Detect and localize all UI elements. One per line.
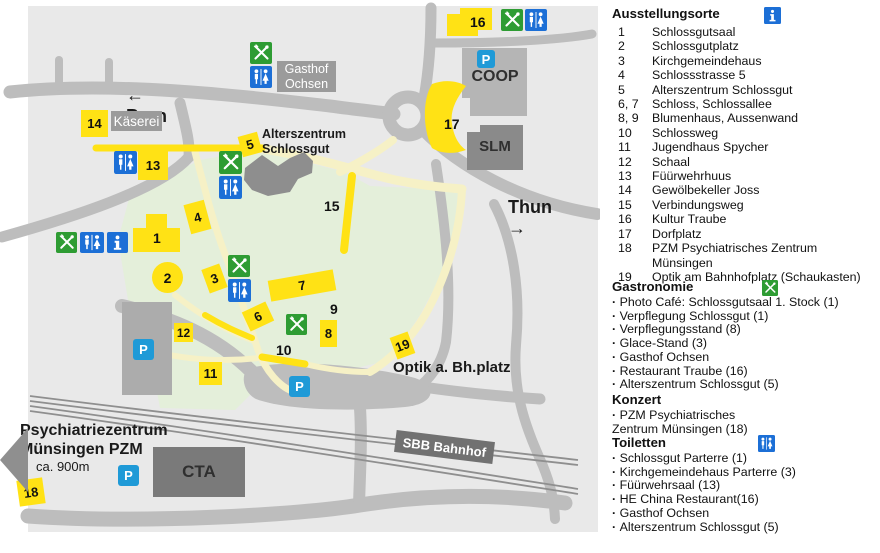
legend-item: PZM Psychiatrisches Zentrum Münsingen (1… <box>608 409 876 436</box>
legend-gastronomy-title: Gastronomie <box>608 279 876 295</box>
item-num: 12 <box>608 155 652 169</box>
legend-item: 6, 7Schloss, Schlossallee <box>608 97 876 111</box>
legend-item: Gasthof Ochsen <box>608 351 876 365</box>
legend-concert-title: Konzert <box>608 392 876 408</box>
parking-icon: P <box>289 376 310 397</box>
item-num: 17 <box>608 227 652 241</box>
item-label: Blumenhaus, Aussenwand <box>652 111 876 125</box>
item-label: PZM Psychiatrisches Zentrum Münsingen <box>652 241 876 270</box>
parking-label: P <box>124 468 133 483</box>
parking-icon: P <box>118 465 139 486</box>
item-num: 8, 9 <box>608 111 652 125</box>
marker-6-label: 6 <box>252 308 265 325</box>
item-label: Verbindungsweg <box>652 198 876 212</box>
marker-7-label: 7 <box>297 277 307 293</box>
item-label: Schloss, Schlossallee <box>652 97 876 111</box>
marker-13-label: 13 <box>146 158 160 173</box>
legend-item: 4Schlossstrasse 5 <box>608 68 876 82</box>
marker-14: 14 <box>81 110 108 137</box>
marker-1: 1 <box>153 231 161 245</box>
item-num: 18 <box>608 241 652 270</box>
item-num: 14 <box>608 183 652 197</box>
toilets-icon <box>80 232 104 253</box>
legend-item: 17Dorfplatz <box>608 227 876 241</box>
item-label: Alterszentrum Schlossgut <box>652 83 876 97</box>
marker-5-label: 5 <box>245 136 256 152</box>
restaurant-icon <box>219 151 242 174</box>
parking-icon: P <box>477 50 495 68</box>
marker-8-label: 8 <box>325 326 332 341</box>
label-alterszentrum: Alterszentrum Schlossgut <box>262 127 346 157</box>
legend-item: 15Verbindungsweg <box>608 198 876 212</box>
toilets-icon <box>758 435 775 452</box>
marker-9: 9 <box>330 302 338 316</box>
item-num: 2 <box>608 39 652 53</box>
toilets-icon <box>525 9 547 31</box>
label-gasthof-ochsen: Gasthof Ochsen <box>277 61 336 92</box>
legend-item: 13Füürwehrhuus <box>608 169 876 183</box>
legend-exhibitions: Ausstellungsorte 1Schlossgutsaal 2Schlos… <box>608 6 876 284</box>
label-pzm-distance: ca. 900m <box>36 459 89 474</box>
legend-item: 11Jugendhaus Spycher <box>608 140 876 154</box>
direction-thun: Thun → <box>508 176 552 240</box>
pzm-arrow-icon <box>0 428 28 492</box>
legend-item: HE China Restaurant(16) <box>608 493 876 507</box>
legend-item: Restaurant Traube (16) <box>608 365 876 379</box>
marker-17: 17 <box>444 117 460 131</box>
marker-11: 11 <box>199 362 222 385</box>
toilets-icon <box>114 151 137 174</box>
label-pzm: Psychiatriezentrum Münsingen PZM <box>20 421 168 459</box>
legend-item: 10Schlossweg <box>608 126 876 140</box>
item-num: 16 <box>608 212 652 226</box>
legend-item: 12Schaal <box>608 155 876 169</box>
label-kaeserei: Käserei <box>111 111 162 131</box>
item-num: 1 <box>608 25 652 39</box>
arrow-left-icon: ← <box>126 85 144 105</box>
item-label: Schaal <box>652 155 876 169</box>
item-num: 6, 7 <box>608 97 652 111</box>
restaurant-icon <box>228 255 250 277</box>
item-label: Schlossgutplatz <box>652 39 876 53</box>
marker-10: 10 <box>276 343 292 357</box>
marker-2-label: 2 <box>164 270 172 286</box>
legend-item: 2Schlossgutplatz <box>608 39 876 53</box>
legend-item: Verpflegungsstand (8) <box>608 323 876 337</box>
restaurant-icon <box>762 280 778 296</box>
marker-16: 16 <box>470 15 486 29</box>
legend-item: 3Kirchgemeindehaus <box>608 54 876 68</box>
restaurant-icon <box>501 9 523 31</box>
legend-item: Gasthof Ochsen <box>608 507 876 521</box>
map-area: 2 3 4 5 6 7 8 11 12 13 14 18 19 1 9 10 1… <box>0 0 600 553</box>
marker-4-label: 4 <box>192 209 203 225</box>
legend-item: Photo Café: Schlossgutsaal 1. Stock (1) <box>608 296 876 310</box>
parking-icon: P <box>133 339 154 360</box>
item-label: Schlossweg <box>652 126 876 140</box>
marker-11-label: 11 <box>204 366 218 381</box>
legend-item: Kirchgemeindehaus Parterre (3) <box>608 466 876 480</box>
legend-item: Alterszentrum Schlossgut (5) <box>608 521 876 535</box>
restaurant-icon <box>250 42 272 64</box>
item-num: 15 <box>608 198 652 212</box>
marker-19-label: 19 <box>393 336 412 355</box>
legend-item: Füürwehrsaal (13) <box>608 479 876 493</box>
legend-item: 18PZM Psychiatrisches Zentrum Münsingen <box>608 241 876 270</box>
legend-toilets: Toiletten Schlossgut Parterre (1) Kirchg… <box>608 435 876 534</box>
direction-thun-label: Thun <box>508 197 552 217</box>
parking-label: P <box>139 342 148 357</box>
legend-gastronomy: Gastronomie Photo Café: Schlossgutsaal 1… <box>608 279 876 392</box>
legend-exhibitions-title: Ausstellungsorte <box>608 6 876 22</box>
marker-14-label: 14 <box>87 116 101 131</box>
marker-12: 12 <box>174 323 193 342</box>
legend-item: 1Schlossgutsaal <box>608 25 876 39</box>
item-num: 4 <box>608 68 652 82</box>
legend-item: Schlossgut Parterre (1) <box>608 452 876 466</box>
item-num: 3 <box>608 54 652 68</box>
item-label: Schlossstrasse 5 <box>652 68 876 82</box>
info-icon <box>764 7 781 24</box>
marker-8: 8 <box>320 320 337 347</box>
item-label: Schlossgutsaal <box>652 25 876 39</box>
arrow-right-icon: → <box>508 218 526 238</box>
marker-15: 15 <box>324 199 340 213</box>
legend-item: 16Kultur Traube <box>608 212 876 226</box>
label-slm: SLM <box>467 138 523 155</box>
legend-toilets-title: Toiletten <box>608 435 876 451</box>
marker-13: 13 <box>138 150 168 180</box>
marker-12-label: 12 <box>177 326 190 340</box>
restaurant-icon <box>56 232 77 253</box>
item-label: Dorfplatz <box>652 227 876 241</box>
label-coop: COOP <box>462 68 528 86</box>
marker-3-label: 3 <box>209 270 221 287</box>
label-optik: Optik a. Bh.platz <box>393 359 511 377</box>
item-label: Kirchgemeindehaus <box>652 54 876 68</box>
toilets-icon <box>228 279 251 302</box>
event-map-page: 2 3 4 5 6 7 8 11 12 13 14 18 19 1 9 10 1… <box>0 0 880 553</box>
item-num: 11 <box>608 140 652 154</box>
legend-item: 8, 9Blumenhaus, Aussenwand <box>608 111 876 125</box>
item-label: Kultur Traube <box>652 212 876 226</box>
legend-concert: Konzert PZM Psychiatrisches Zentrum Müns… <box>608 392 876 436</box>
restaurant-icon <box>286 314 307 335</box>
item-num: 13 <box>608 169 652 183</box>
label-cta: CTA <box>153 462 245 482</box>
item-num: 10 <box>608 126 652 140</box>
info-icon <box>107 232 128 253</box>
item-label: Gewölbekeller Joss <box>652 183 876 197</box>
marker-2: 2 <box>152 262 183 293</box>
legend-item: 5Alterszentrum Schlossgut <box>608 83 876 97</box>
parking-label: P <box>482 52 491 67</box>
legend-item: Glace-Stand (3) <box>608 337 876 351</box>
legend-item: Verpflegung Schlossgut (1) <box>608 310 876 324</box>
item-label: Füürwehrhuus <box>652 169 876 183</box>
legend-panel: Ausstellungsorte 1Schlossgutsaal 2Schlos… <box>608 0 876 553</box>
toilets-icon <box>219 176 242 199</box>
legend-item: 14Gewölbekeller Joss <box>608 183 876 197</box>
legend-item: Alterszentrum Schlossgut (5) <box>608 378 876 392</box>
parking-label: P <box>295 379 304 394</box>
toilets-icon <box>250 66 272 88</box>
item-label: Jugendhaus Spycher <box>652 140 876 154</box>
item-num: 5 <box>608 83 652 97</box>
